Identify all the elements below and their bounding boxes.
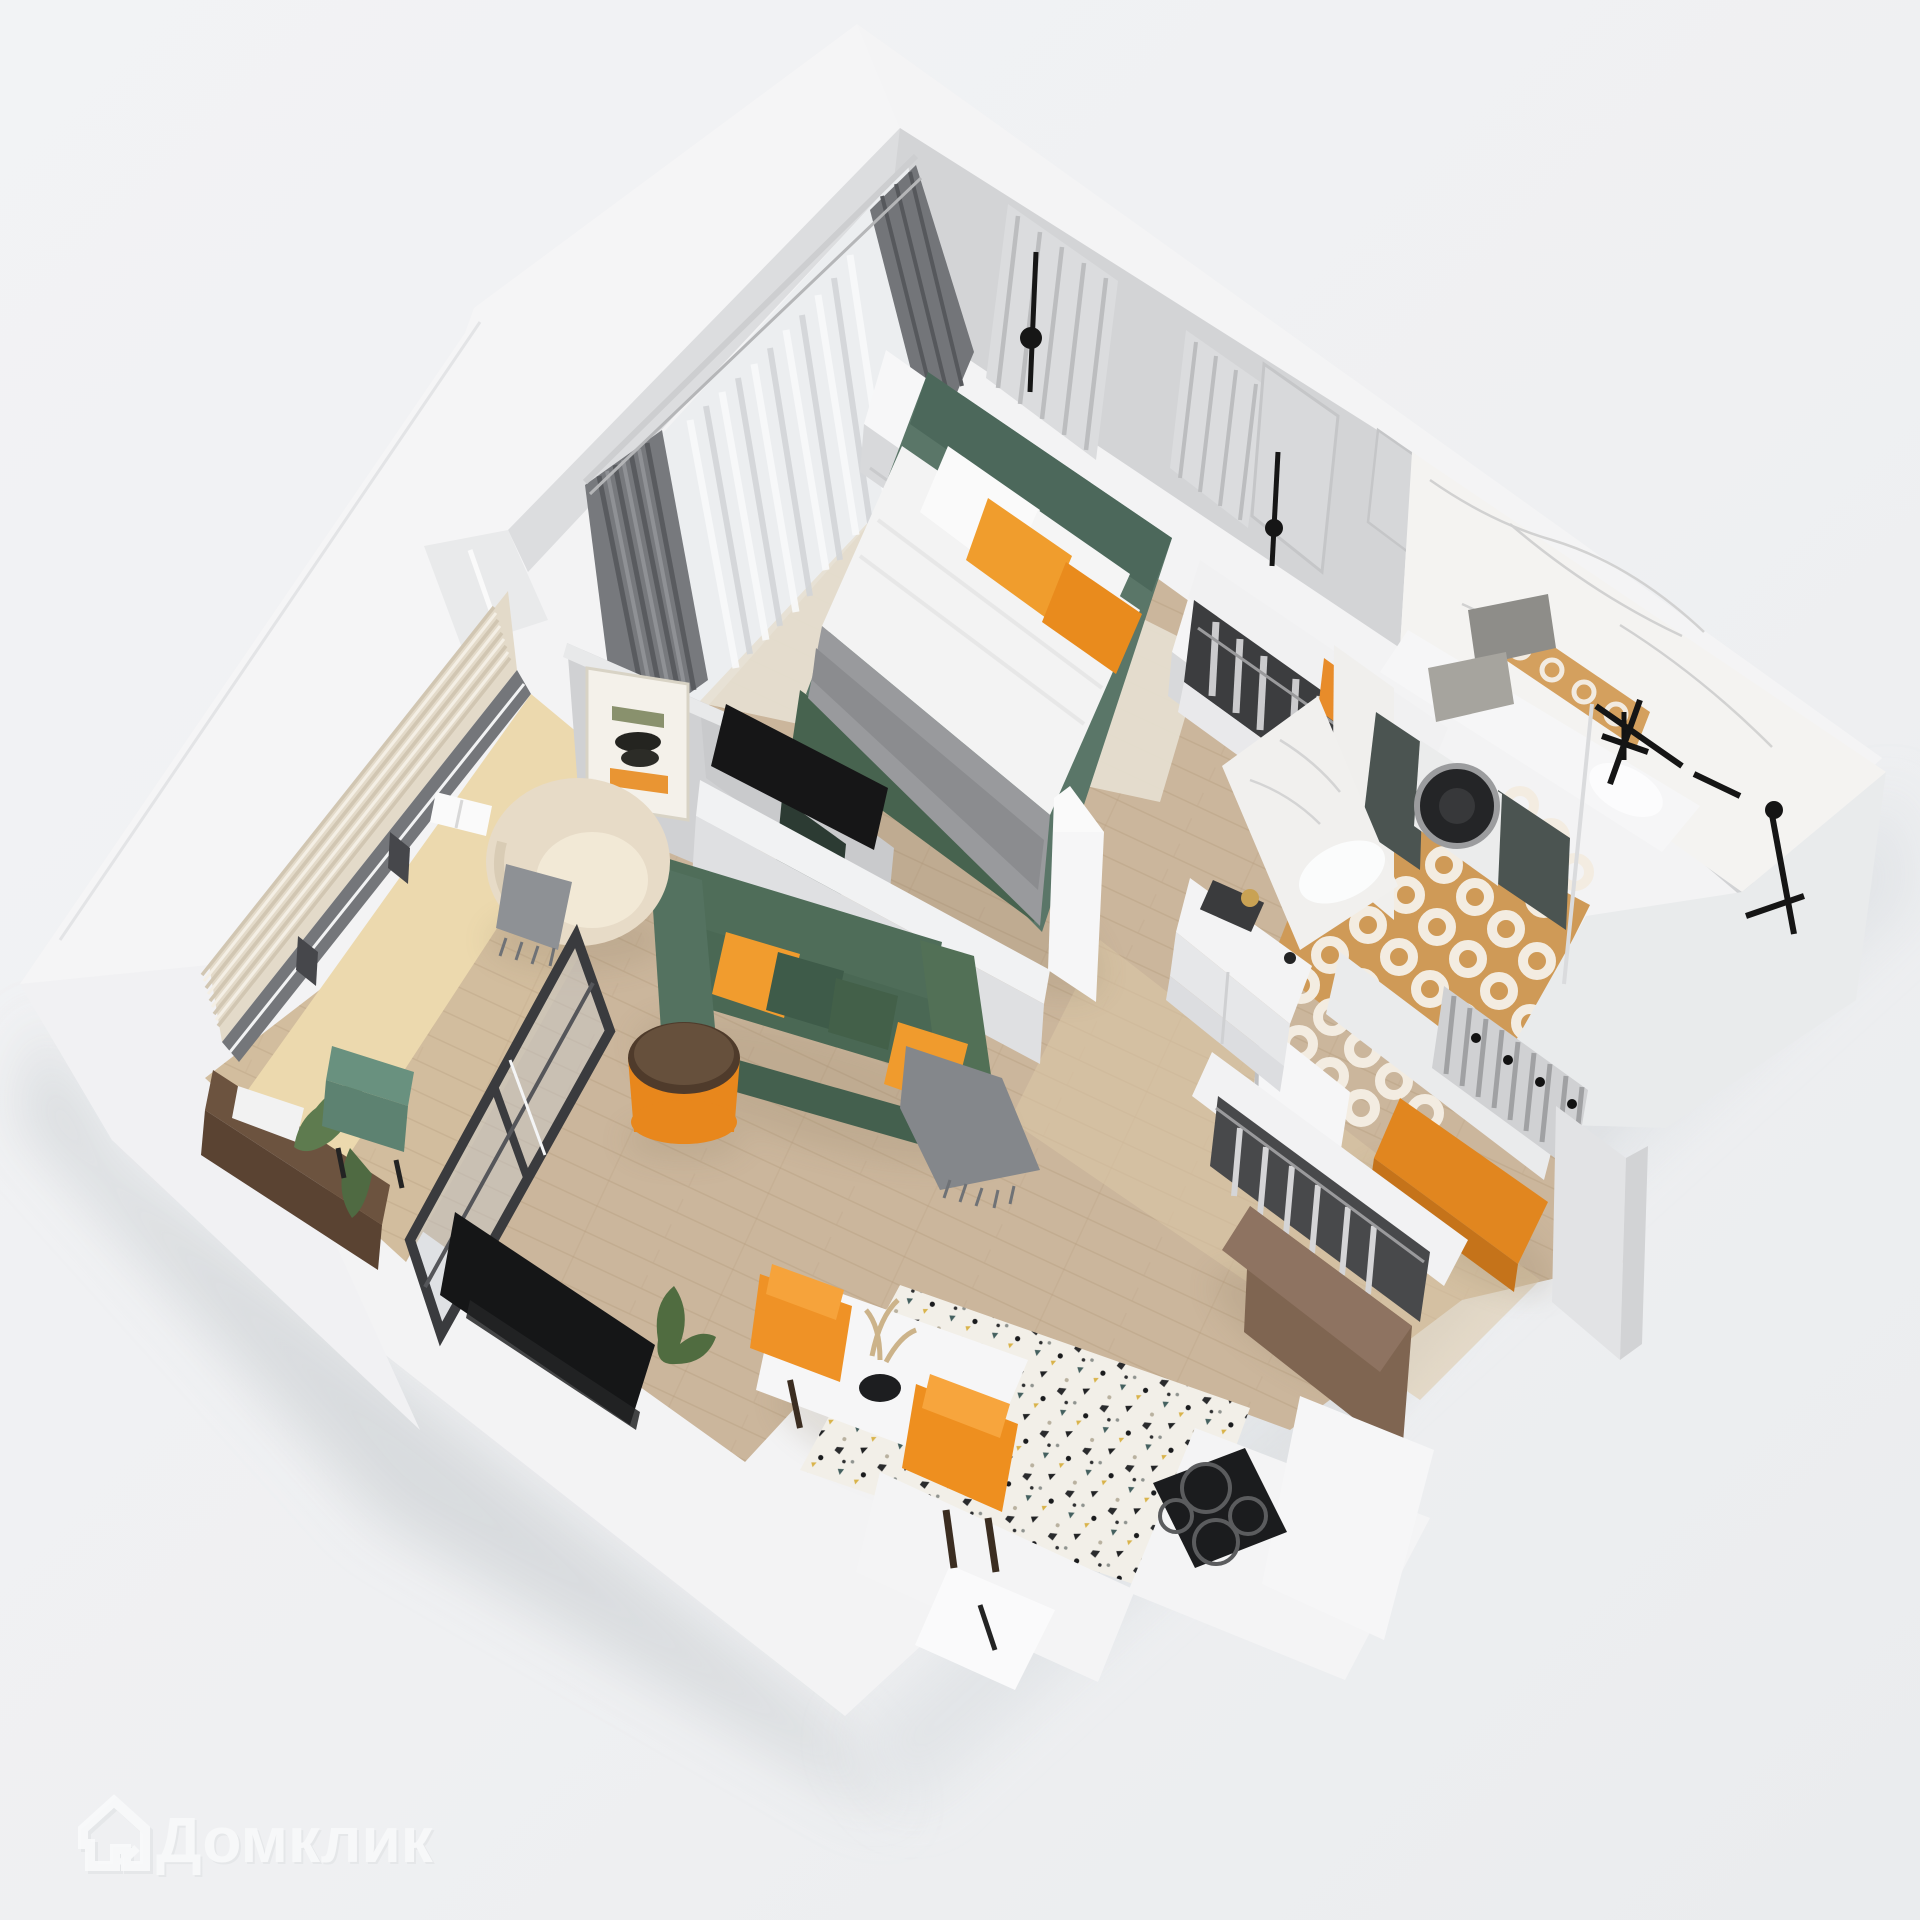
svg-text:Домклик: Домклик (156, 1804, 434, 1876)
